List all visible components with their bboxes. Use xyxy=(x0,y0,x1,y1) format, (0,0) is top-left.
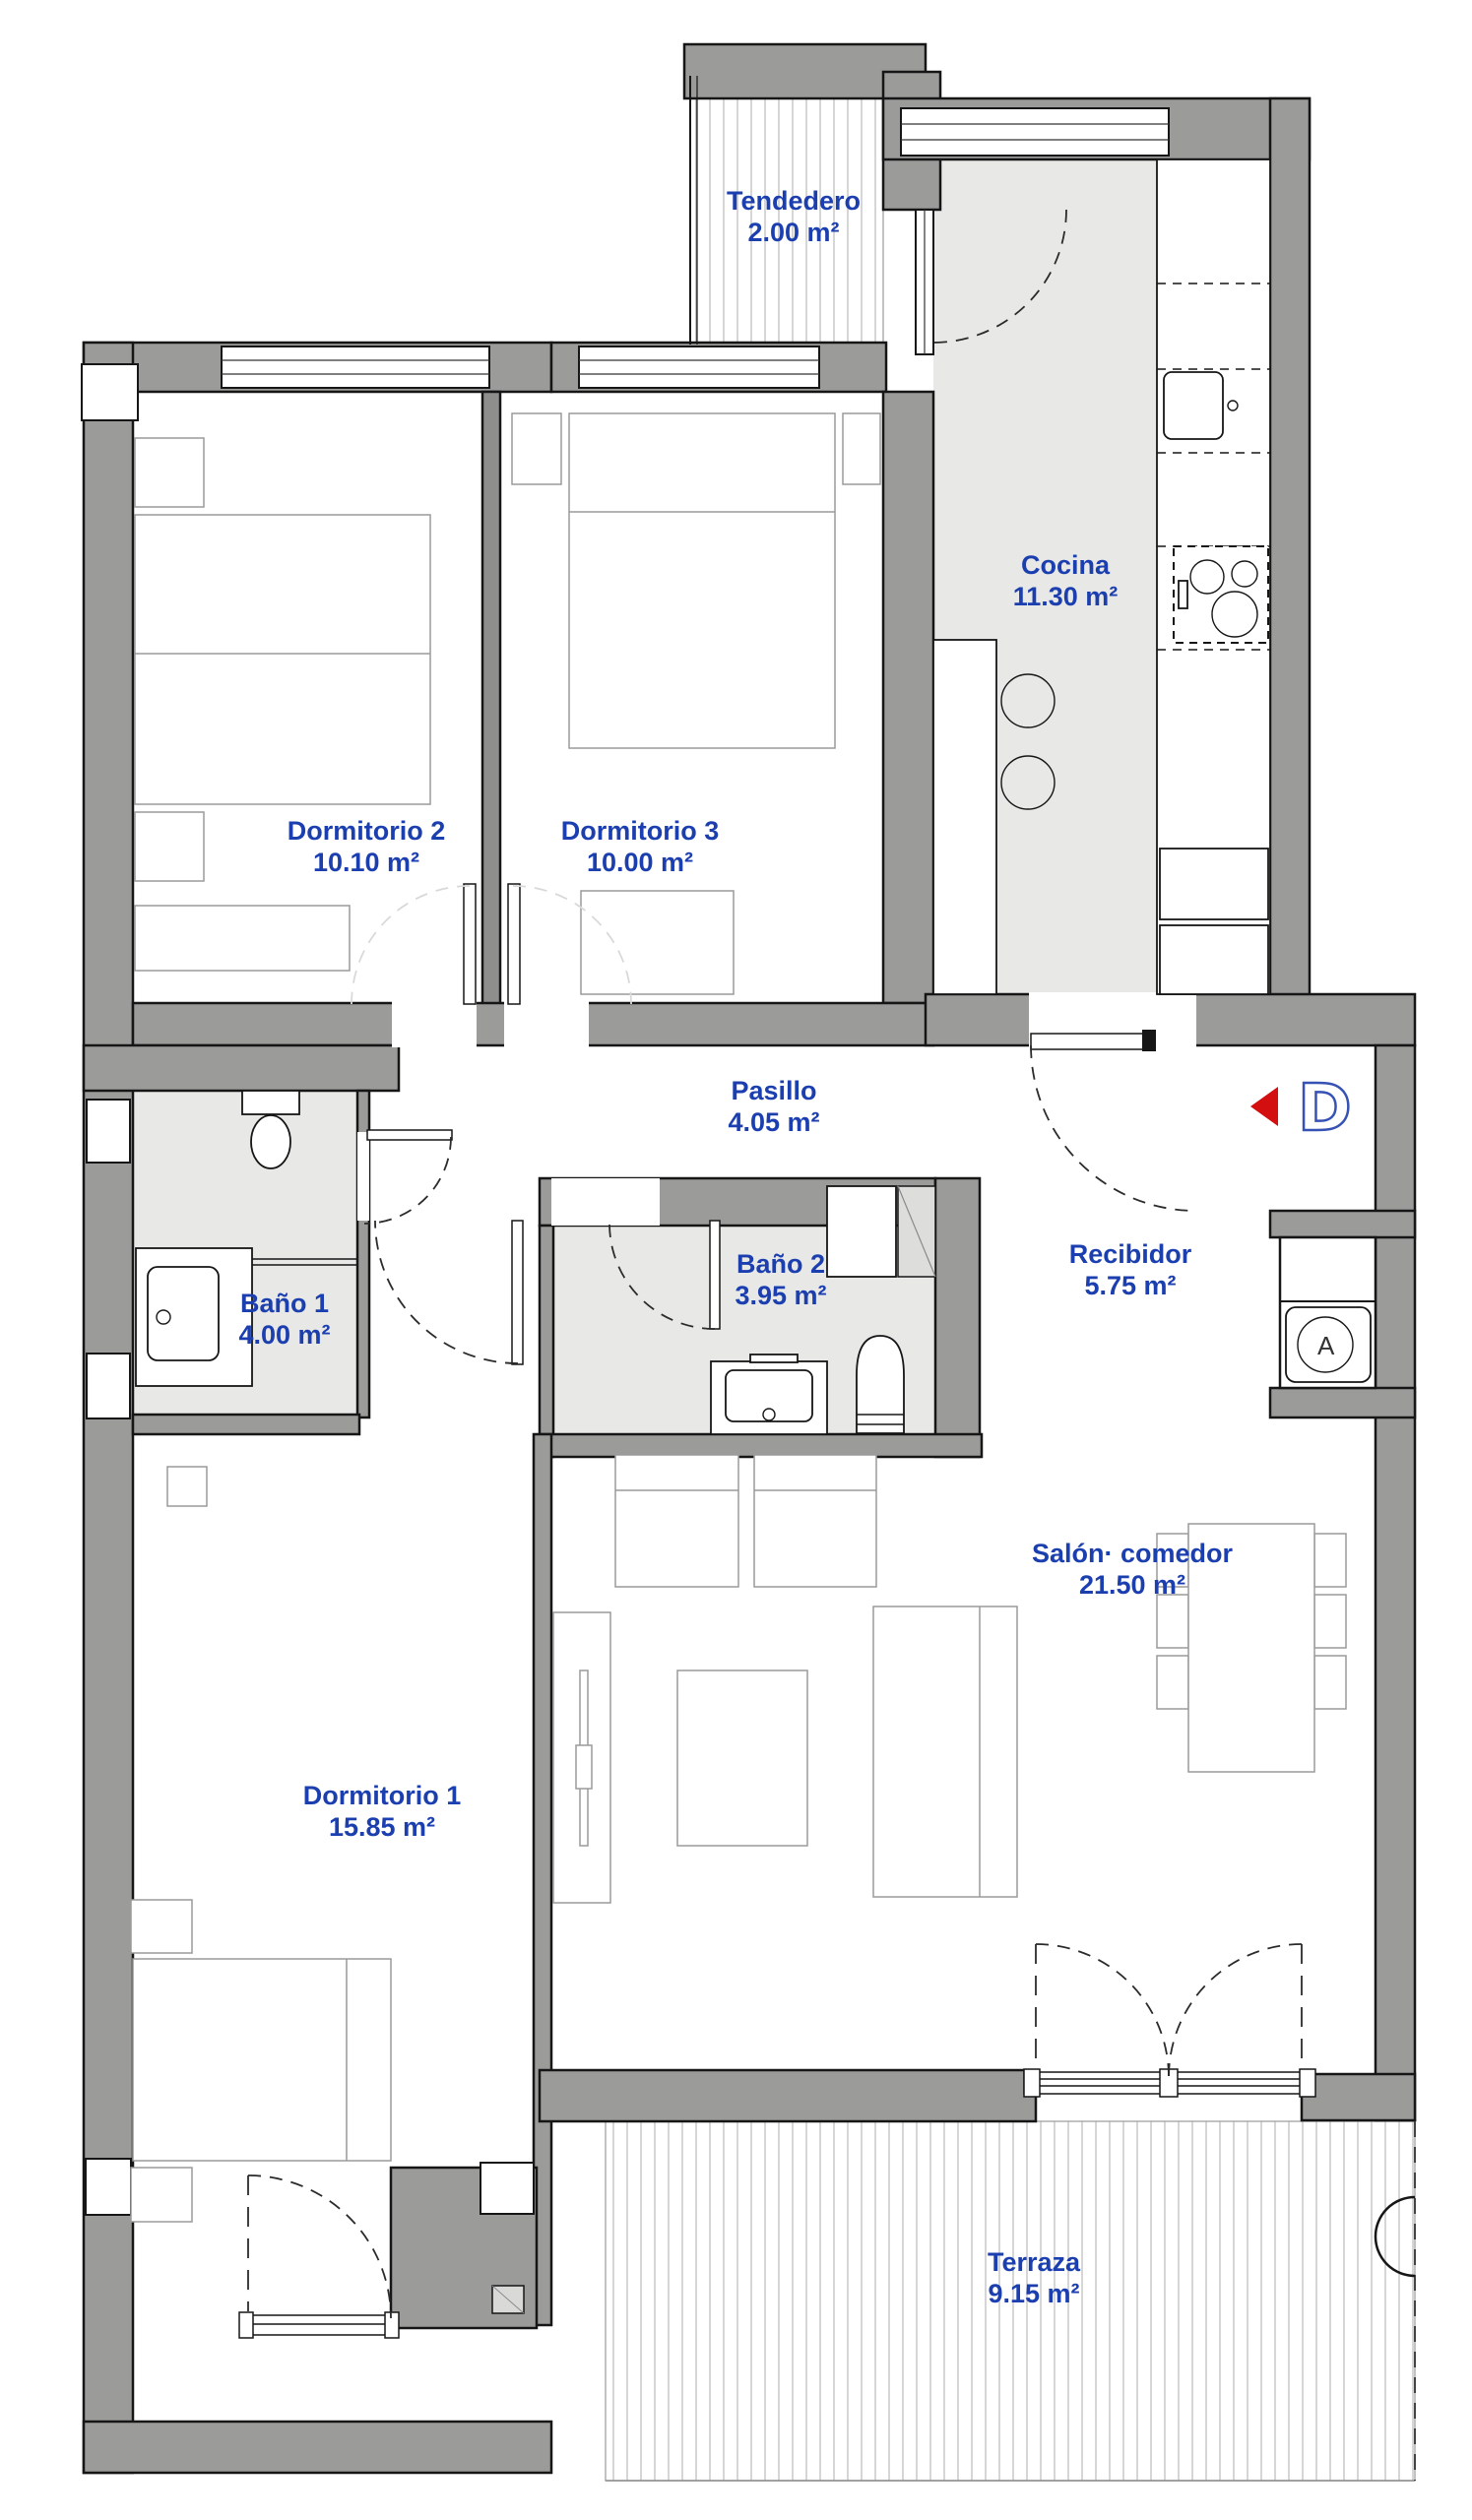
sink-icon xyxy=(711,1354,827,1434)
room-area: 2.00 m² xyxy=(727,217,861,248)
window-dorm3 xyxy=(579,346,819,388)
floor-plan: A xyxy=(0,0,1472,2520)
hob-icon xyxy=(1174,546,1268,643)
room-name: Terraza xyxy=(988,2247,1080,2277)
room-label-salon: Salón· comedor 21.50 m² xyxy=(1032,1538,1233,1601)
room-area: 11.30 m² xyxy=(1013,581,1119,612)
window-bath1 xyxy=(87,1100,130,1163)
window-dorm1-low xyxy=(86,2159,131,2215)
column xyxy=(82,364,138,420)
nightstand xyxy=(135,812,204,881)
bath2-bottom-wall xyxy=(540,1434,982,1457)
wall-dorm3-kitchen xyxy=(883,392,933,1003)
kitchen-cabinet xyxy=(1160,849,1268,919)
shower-icon xyxy=(827,1186,935,1277)
sofa xyxy=(873,1606,1017,1897)
room-label-tendedero: Tendedero 2.00 m² xyxy=(727,185,861,248)
room-name: Pasillo xyxy=(731,1076,816,1105)
room-name: Tendedero xyxy=(727,186,861,216)
door-hinge xyxy=(1142,1030,1156,1051)
door-swing-arc xyxy=(364,1137,451,1224)
chair xyxy=(1314,1595,1346,1648)
room-area: 3.95 m² xyxy=(735,1280,826,1311)
entrance-marker-letter: D xyxy=(1298,1070,1352,1146)
entrance-door-swing-arc xyxy=(1031,1045,1196,1211)
door-swing-arc xyxy=(375,1221,518,1363)
room-label-bano1: Baño 1 4.00 m² xyxy=(238,1288,330,1351)
room-label-terraza: Terraza 9.15 m² xyxy=(988,2246,1080,2309)
room-label-dormitorio3: Dormitorio 3 10.00 m² xyxy=(561,815,720,878)
closet-niche-top xyxy=(1270,1211,1415,1237)
window-kitchen xyxy=(901,108,1169,156)
door-gap-dorm3 xyxy=(504,1001,589,1047)
room-label-recibidor: Recibidor 5.75 m² xyxy=(1069,1238,1192,1301)
closet-niche-bottom xyxy=(1270,1388,1415,1417)
bed xyxy=(569,413,835,748)
chair xyxy=(1157,1595,1188,1648)
nightstand xyxy=(843,413,880,484)
room-area: 4.05 m² xyxy=(728,1106,819,1138)
bed xyxy=(135,515,430,804)
partition-dorm2-dorm3 xyxy=(482,392,500,1012)
dresser xyxy=(581,891,734,994)
room-name: Dormitorio 2 xyxy=(288,816,446,846)
room-label-bano2: Baño 2 3.95 m² xyxy=(735,1248,826,1311)
washing-machine-letter: A xyxy=(1317,1331,1335,1360)
dresser xyxy=(135,906,350,971)
chair xyxy=(1314,1656,1346,1709)
room-label-dormitorio1: Dormitorio 1 15.85 m² xyxy=(303,1780,462,1843)
radiator xyxy=(167,1467,207,1506)
bath2-right-wall xyxy=(935,1178,980,1457)
room-name: Salón· comedor xyxy=(1032,1539,1233,1568)
chair xyxy=(1157,1656,1188,1709)
window-dorm2 xyxy=(222,346,489,388)
room-name: Dormitorio 3 xyxy=(561,816,720,846)
room-label-pasillo: Pasillo 4.05 m² xyxy=(728,1075,819,1138)
nightstand xyxy=(135,438,204,507)
chair xyxy=(1314,1534,1346,1587)
terrace-door xyxy=(239,2175,399,2338)
bath2-left-wall xyxy=(540,1226,553,1457)
door-gap-bath1 xyxy=(357,1132,369,1221)
french-doors xyxy=(1024,1944,1315,2097)
room-name: Baño 2 xyxy=(736,1249,825,1279)
bed xyxy=(133,1959,391,2161)
door-swing-arc xyxy=(352,886,470,1004)
room-area: 4.00 m² xyxy=(238,1319,330,1351)
armchair xyxy=(754,1455,876,1587)
bath1-top-wall xyxy=(84,1045,399,1091)
salon-bottom-wall xyxy=(1302,2074,1415,2120)
salon-bottom-wall xyxy=(540,2070,1036,2121)
sink-icon xyxy=(136,1248,252,1386)
door-leaf xyxy=(512,1221,523,1364)
entrance-arrow-icon xyxy=(1250,1087,1278,1126)
room-name: Cocina xyxy=(1021,550,1110,580)
column-small xyxy=(492,2286,524,2313)
entrance-marker: D xyxy=(1250,1070,1352,1146)
armchair xyxy=(615,1455,738,1587)
tv-mount xyxy=(576,1745,592,1789)
outer-wall-bottom xyxy=(84,2422,551,2473)
kitchen-cabinet xyxy=(1160,925,1268,994)
kitchen-peninsula xyxy=(933,640,996,994)
room-label-dormitorio2: Dormitorio 2 10.10 m² xyxy=(288,815,446,878)
door-leaf xyxy=(464,884,476,1004)
outer-wall-right xyxy=(1376,1045,1415,2120)
room-area: 21.50 m² xyxy=(1032,1569,1233,1601)
door-gap-bath2 xyxy=(551,1178,660,1226)
room-area: 9.15 m² xyxy=(988,2278,1080,2309)
room-area: 15.85 m² xyxy=(303,1811,462,1843)
door-leaf xyxy=(367,1130,452,1140)
room-name: Recibidor xyxy=(1069,1239,1192,1269)
entrance-door-leaf xyxy=(1031,1034,1149,1049)
door-leaf xyxy=(508,884,520,1004)
window-kitchen-tendedero xyxy=(916,210,933,354)
room-area: 10.10 m² xyxy=(288,847,446,878)
room-area: 10.00 m² xyxy=(561,847,720,878)
nightstand xyxy=(512,413,561,484)
room-area: 5.75 m² xyxy=(1069,1270,1192,1301)
nightstand xyxy=(131,2168,192,2222)
toilet-icon xyxy=(857,1336,904,1433)
door-gap-dorm2 xyxy=(392,1001,477,1047)
coffee-table xyxy=(677,1670,807,1846)
outer-wall-right-kitchen xyxy=(1270,98,1310,1034)
washing-machine-icon: A xyxy=(1286,1307,1371,1382)
window-dorm1 xyxy=(87,1354,130,1418)
room-name: Baño 1 xyxy=(240,1289,329,1318)
window-dorm1-terrace xyxy=(480,2163,534,2214)
room-name: Dormitorio 1 xyxy=(303,1781,462,1810)
nightstand xyxy=(131,1900,192,1953)
door-leaf xyxy=(710,1221,720,1329)
room-label-cocina: Cocina 11.30 m² xyxy=(1013,549,1119,612)
bath1-bottom-wall xyxy=(133,1415,359,1434)
